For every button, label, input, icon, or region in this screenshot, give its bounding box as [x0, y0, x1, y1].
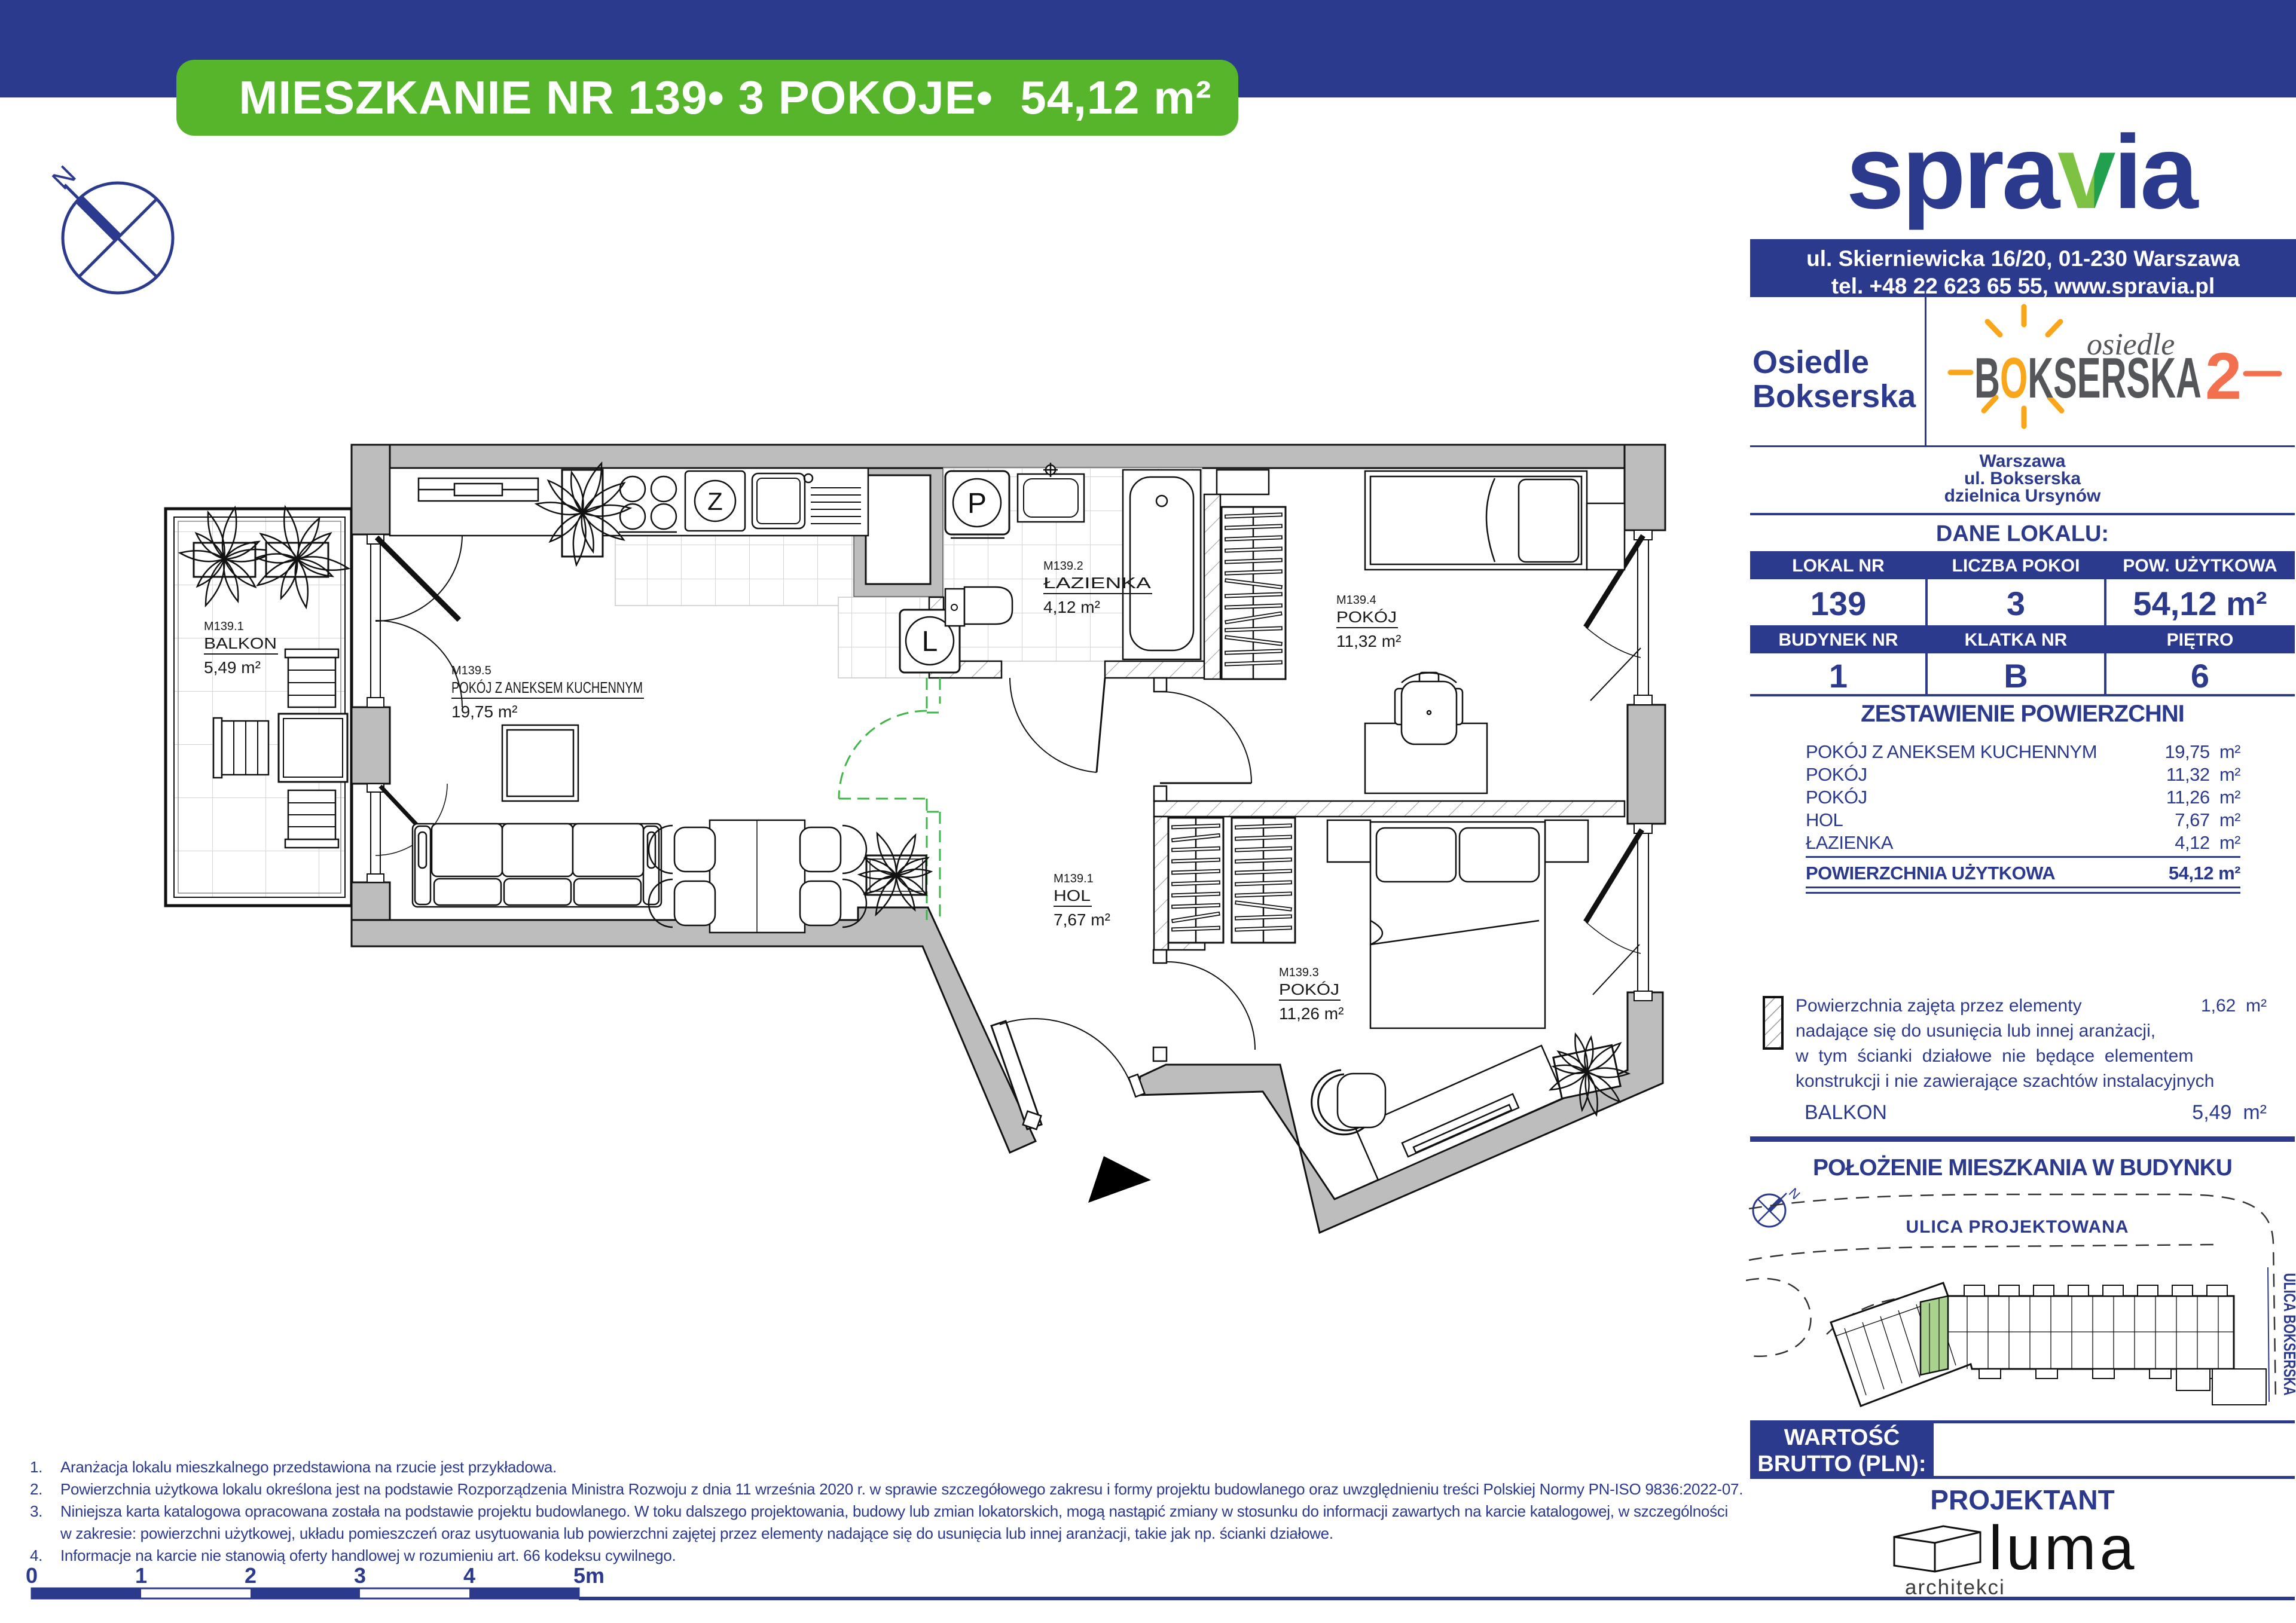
svg-text:M139.1: M139.1: [204, 620, 244, 633]
svg-text:M139.3: M139.3: [1279, 966, 1319, 979]
svg-text:19,75 m²: 19,75 m²: [451, 702, 518, 721]
svg-text:POKÓJ: POKÓJ: [1279, 980, 1339, 998]
svg-text:M139.2: M139.2: [1043, 560, 1083, 573]
svg-text:11,32 m²: 11,32 m²: [1336, 632, 1401, 650]
svg-text:5,49 m²: 5,49 m²: [204, 658, 261, 677]
svg-text:11,26 m²: 11,26 m²: [1279, 1004, 1344, 1023]
svg-text:Z: Z: [707, 487, 723, 515]
svg-text:4,12 m²: 4,12 m²: [1043, 598, 1100, 616]
svg-text:BALKON: BALKON: [204, 634, 277, 652]
svg-text:7,67 m²: 7,67 m²: [1054, 910, 1110, 929]
svg-text:HOL: HOL: [1054, 887, 1091, 904]
svg-text:P: P: [967, 488, 987, 519]
svg-text:POKÓJ Z ANEKSEM KUCHENNYM: POKÓJ Z ANEKSEM KUCHENNYM: [451, 678, 643, 696]
svg-text:M139.5: M139.5: [451, 664, 491, 677]
svg-text:POKÓJ: POKÓJ: [1336, 608, 1397, 626]
svg-text:ŁAZIENKA: ŁAZIENKA: [1043, 574, 1152, 592]
svg-text:M139.4: M139.4: [1336, 594, 1376, 607]
svg-text:ULICA PROJEKTOWANA: ULICA PROJEKTOWANA: [1906, 1217, 2129, 1237]
svg-text:ULICA BOKSERSKA: ULICA BOKSERSKA: [2280, 1273, 2296, 1396]
svg-text:N: N: [1786, 1185, 1803, 1202]
svg-text:L: L: [922, 626, 938, 658]
svg-text:M139.1: M139.1: [1054, 872, 1094, 885]
